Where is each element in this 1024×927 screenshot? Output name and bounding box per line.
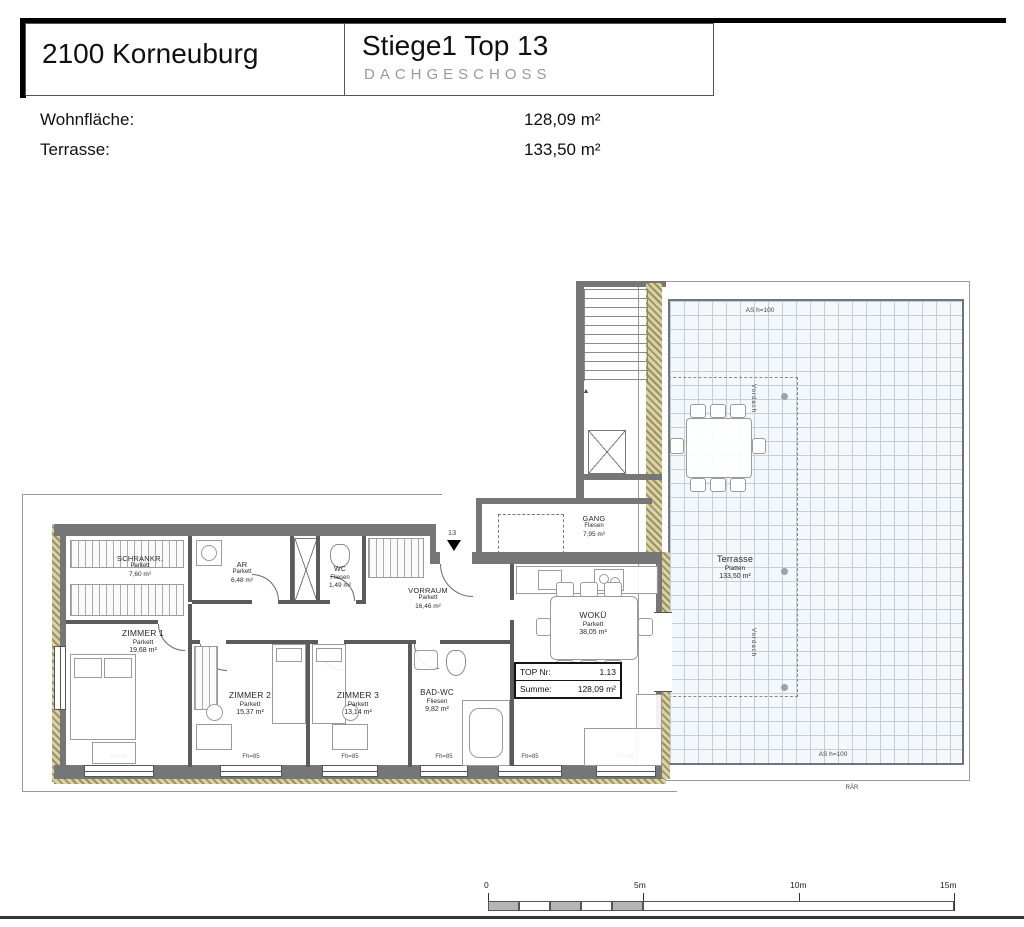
- roof-edge-line: [22, 494, 23, 792]
- pillow: [104, 658, 132, 678]
- raer-label: RÄR: [832, 785, 872, 791]
- dining-chair: [536, 618, 551, 636]
- wall-segment: [476, 498, 652, 504]
- room-name: BAD-WC: [394, 688, 480, 698]
- scale-bar-segment: [550, 901, 581, 911]
- dresser: [92, 742, 136, 764]
- room-floor-type: Parkett: [552, 621, 634, 629]
- scale-tick-mark: [954, 893, 955, 911]
- terrace-chair: [690, 404, 706, 418]
- window-height-label: Fh=85: [510, 754, 550, 760]
- room-label-wc: WC Fliesen 1,49 m²: [308, 566, 372, 590]
- staircase: [584, 289, 648, 381]
- window-height-label: Fh=85: [231, 754, 271, 760]
- top-sum-row: Summe: 128,09 m²: [516, 680, 620, 697]
- top-number-box: TOP Nr: 1.13 Summe: 128,09 m²: [514, 662, 622, 699]
- window: [322, 765, 378, 777]
- room-label-terrasse: Terrasse Platten 133,50 m²: [690, 554, 780, 582]
- room-floor-type: Parkett: [314, 701, 402, 709]
- room-area: 19,68 m²: [98, 647, 188, 656]
- scale-tick-0: 0: [484, 880, 489, 890]
- scale-tick-5m: 5m: [634, 880, 646, 890]
- wall-segment: [344, 640, 416, 644]
- scale-bar-segment: [643, 901, 954, 911]
- unit-title: Stiege1 Top 13: [362, 30, 548, 62]
- shaft-box: [588, 430, 626, 474]
- room-floor-type: Fliesen: [394, 698, 480, 706]
- wall-segment: [192, 640, 200, 644]
- toilet: [330, 544, 350, 568]
- terrace-chair: [730, 478, 746, 492]
- window: [498, 765, 562, 777]
- wall-segment: [440, 640, 514, 644]
- room-name: WC: [308, 566, 372, 575]
- entrance-triangle-icon: [447, 540, 461, 551]
- terrace-as-bottom-label: AS h=100: [788, 751, 878, 758]
- room-area: 9,82 m²: [394, 706, 480, 715]
- room-area: 15,37 m²: [204, 709, 296, 718]
- window-height-label: Fh=85: [330, 754, 370, 760]
- pillow: [74, 658, 102, 678]
- room-floor-type: Parkett: [98, 639, 188, 647]
- terrace-chair: [710, 404, 726, 418]
- room-area: 6,48 m²: [206, 577, 278, 585]
- room-name: ZIMMER 1: [98, 628, 188, 639]
- dining-chair: [580, 582, 598, 597]
- room-area: 7,60 m²: [92, 571, 188, 579]
- room-name: VORRAUM: [396, 586, 460, 595]
- room-label-zimmer2: ZIMMER 2 Parkett 15,37 m²: [204, 690, 296, 718]
- room-name: Terrasse: [690, 554, 780, 565]
- floorplan-page: 2100 Korneuburg Stiege1 Top 13 DACHGESCH…: [0, 0, 1024, 927]
- window: [420, 765, 468, 777]
- hall-wardrobe: [368, 538, 424, 578]
- entrance-number: 13: [442, 528, 462, 537]
- top-number-row: TOP Nr: 1.13: [516, 664, 620, 680]
- room-floor-type: Fliesen: [308, 575, 372, 583]
- room-floor-type: Parkett: [206, 569, 278, 577]
- wardrobe: [70, 584, 184, 616]
- wall-segment: [476, 498, 482, 558]
- wall-segment: [188, 536, 192, 602]
- dining-chair: [638, 618, 653, 636]
- room-floor-type: Parkett: [204, 701, 296, 709]
- scale-tick-10m: 10m: [790, 880, 807, 890]
- room-floor-type: Parkett: [92, 563, 188, 571]
- terrace-chair: [752, 438, 766, 454]
- roof-edge-line: [22, 494, 442, 495]
- wall-segment: [188, 604, 192, 767]
- scale-bar-segment: [488, 901, 519, 911]
- dining-chair: [604, 582, 622, 597]
- desk: [196, 724, 232, 750]
- window: [596, 765, 656, 777]
- desk: [332, 724, 368, 750]
- entrance-door-opening: [440, 552, 472, 564]
- wall-segment: [356, 600, 366, 604]
- room-name: GANG: [566, 514, 622, 523]
- room-label-zimmer1: ZIMMER 1 Parkett 19,68 m²: [98, 628, 188, 656]
- roof-edge-line: [22, 791, 677, 792]
- terrasse-value: 133,50 m²: [524, 140, 601, 160]
- room-area: 133,50 m²: [690, 573, 780, 582]
- room-label-badwc: BAD-WC Fliesen 9,82 m²: [394, 688, 480, 715]
- project-address: 2100 Korneuburg: [42, 38, 258, 70]
- canopy-post: [781, 393, 788, 400]
- vordach-label-bottom: Vordach: [750, 628, 756, 688]
- terrace-table: [686, 418, 752, 478]
- top-nr-label: TOP Nr:: [520, 667, 551, 677]
- wall-segment: [510, 564, 514, 600]
- sofa: [584, 728, 662, 766]
- room-name: WOKÜ: [552, 610, 634, 621]
- wall-segment: [66, 620, 158, 624]
- wall-segment: [54, 524, 436, 536]
- wall-segment: [576, 389, 584, 501]
- room-area: 13,14 m²: [314, 709, 402, 718]
- window: [220, 765, 282, 777]
- top-sum-value: 128,09 m²: [578, 684, 616, 694]
- room-area: 7,95 m²: [566, 531, 622, 539]
- room-floor-type: Fliesen: [566, 523, 622, 531]
- room-label-ar: AR Parkett 6,48 m²: [206, 560, 278, 585]
- sink: [414, 650, 438, 670]
- floor-level-label: DACHGESCHOSS: [364, 66, 552, 83]
- window-height-label: Fh=85: [424, 754, 464, 760]
- terrace-chair: [730, 404, 746, 418]
- room-floor-type: Platten: [690, 565, 780, 573]
- room-name: ZIMMER 2: [204, 690, 296, 701]
- room-floor-type: Parkett: [396, 595, 460, 603]
- room-label-woku: WOKÜ Parkett 38,05 m²: [552, 610, 634, 638]
- canopy-post: [781, 568, 788, 575]
- room-area: 38,05 m²: [552, 629, 634, 638]
- level-marker: ▲: [580, 388, 592, 395]
- room-label-zimmer3: ZIMMER 3 Parkett 13,14 m²: [314, 690, 402, 718]
- terrace-door-opening: [654, 612, 672, 692]
- dining-chair: [556, 582, 574, 597]
- wall-segment: [510, 620, 514, 644]
- canopy-post: [781, 684, 788, 691]
- wohnflaeche-label: Wohnfläche:: [40, 110, 134, 130]
- room-label-schrankr: SCHRANKR. Parkett 7,60 m²: [92, 554, 188, 579]
- top-nr-value: 1.13: [599, 667, 616, 677]
- scale-bar-segment: [519, 901, 550, 911]
- terrace-chair: [690, 478, 706, 492]
- window: [54, 646, 66, 710]
- room-area: 16,46 m²: [396, 603, 460, 611]
- scale-bar-segment: [581, 901, 612, 911]
- wall-segment: [576, 283, 584, 389]
- page-bottom-border: [0, 916, 1024, 919]
- terrace-as-top-label: AS h=100: [700, 307, 820, 314]
- terrace-chair: [710, 478, 726, 492]
- wall-segment: [576, 474, 662, 480]
- room-area: 1,49 m²: [308, 582, 372, 590]
- pillow: [316, 648, 342, 662]
- room-name: SCHRANKR.: [92, 554, 188, 563]
- terrace-chair: [670, 438, 684, 454]
- wohnflaeche-value: 128,09 m²: [524, 110, 601, 130]
- room-label-gang: GANG Fliesen 7,95 m²: [566, 514, 622, 539]
- toilet: [446, 650, 466, 676]
- scale-tick-15m: 15m: [940, 880, 957, 890]
- exterior-insulated-wall: [646, 283, 662, 559]
- gang-dashed-area: [498, 514, 564, 554]
- room-label-vorraum: VORRAUM Parkett 16,46 m²: [396, 586, 460, 611]
- exterior-insulated-wall: [54, 779, 666, 784]
- wall-segment: [306, 644, 310, 767]
- window: [84, 765, 154, 777]
- room-name: AR: [206, 560, 278, 569]
- wall-segment: [278, 600, 330, 604]
- terrasse-label: Terrasse:: [40, 140, 110, 160]
- pillow: [276, 648, 302, 662]
- room-name: ZIMMER 3: [314, 690, 402, 701]
- top-sum-label: Summe:: [520, 684, 552, 694]
- scale-bar-segment: [612, 901, 643, 911]
- wall-segment: [192, 600, 252, 604]
